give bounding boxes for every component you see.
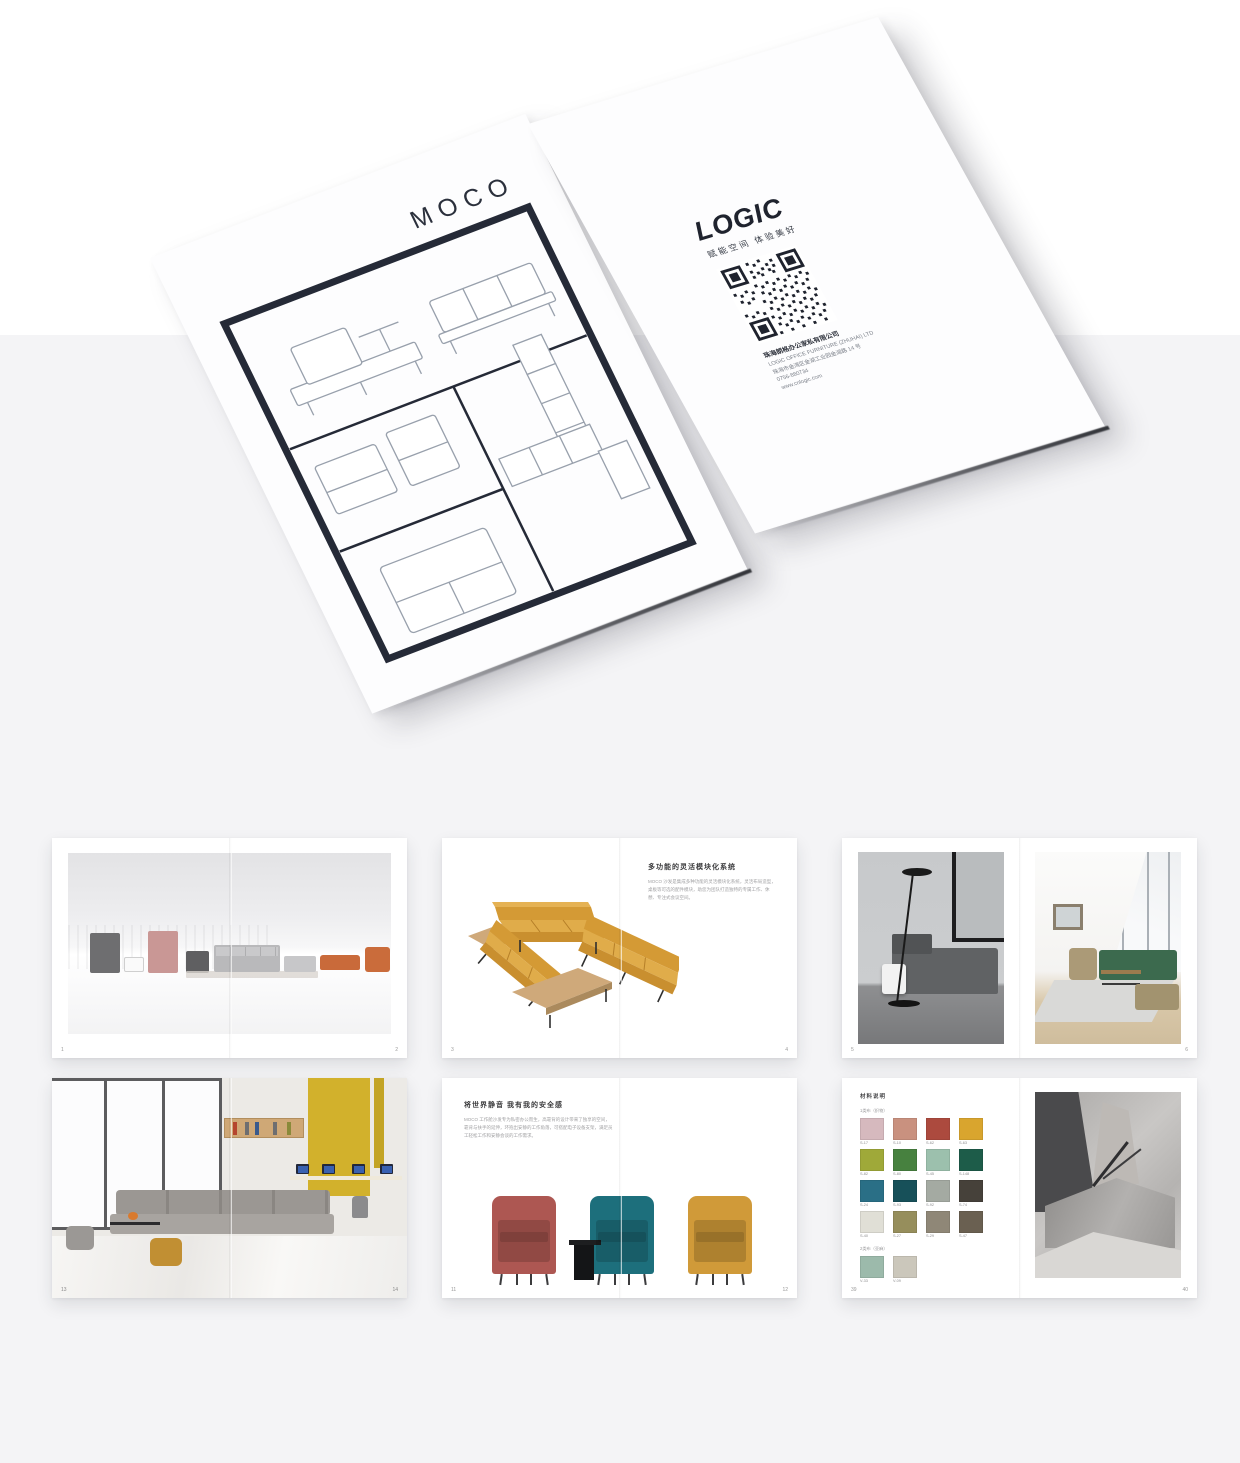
page-fold (619, 1078, 622, 1298)
fabric-swatch: S-45 (926, 1149, 952, 1176)
orange-daybed (320, 955, 360, 970)
fabric-swatch: S-29 (926, 1211, 952, 1238)
green-sofa-photo (1035, 852, 1181, 1044)
swatch-color-chip (959, 1118, 983, 1140)
fabric-swatch: S-40 (860, 1211, 886, 1238)
line-plan-view-right (454, 323, 649, 532)
pink-booth-chair (148, 931, 178, 973)
gray-booth-chair (90, 933, 120, 973)
fabric-swatch: S-17 (860, 1118, 886, 1145)
fabric-swatch: S-62 (926, 1118, 952, 1145)
craftsmanship-photo (1035, 1092, 1181, 1278)
page-number-right: 40 (1182, 1287, 1188, 1293)
monitor-icon (352, 1164, 365, 1174)
beige-armchair (1069, 948, 1097, 980)
wall-picture (1053, 904, 1083, 930)
heading: 将世界静音 我有我的安全感 (464, 1100, 614, 1110)
swatch-color-chip (926, 1118, 950, 1140)
line-sofa-top-left (273, 307, 429, 419)
fabric-swatch: S-93 (893, 1180, 919, 1207)
rose-highback-chair (492, 1196, 556, 1274)
teal-highback-chair (590, 1196, 654, 1274)
body-text: MOCO 沙发是集成多种功能的灵活模块化系统，灵活布局造型，桌板等可选的配件模块… (648, 878, 776, 902)
mustard-highback-chair (688, 1196, 752, 1274)
page-number-right: 12 (782, 1287, 788, 1293)
swatch-color-chip (893, 1211, 917, 1233)
dark-lounge-chair (186, 951, 209, 973)
page-number-right: 14 (392, 1287, 398, 1293)
swatch-color-chip (893, 1180, 917, 1202)
swatch-color-chip (860, 1118, 884, 1140)
gray-pouf (66, 1226, 94, 1250)
page-fold (1019, 838, 1022, 1058)
mustard-sofa-illustration (454, 876, 679, 1046)
page-fold (1019, 1078, 1022, 1298)
swatch-code: S-74 (959, 1203, 985, 1207)
green-sofa (1099, 950, 1177, 980)
swatch-code: S-10 (893, 1141, 919, 1145)
swatch-code: S-45 (926, 1172, 952, 1176)
monitor-icon (322, 1164, 335, 1174)
swatch-code: S-17 (860, 1141, 886, 1145)
swatch-code: S-24 (860, 1203, 886, 1207)
line-loveseats-mid-left (312, 414, 461, 514)
linen-swatch-grid: V-33 V-09 (860, 1256, 1010, 1283)
monitor-icon (380, 1164, 393, 1174)
swatch-code: S-148 (959, 1172, 985, 1176)
spread-modular-system: 多功能的灵活模块化系统 MOCO 沙发是集成多种功能的灵活模块化系统，灵活布局造… (442, 838, 797, 1058)
swatch-code: S-40 (860, 1234, 886, 1238)
workstation-desk (290, 1176, 402, 1180)
coffee-table (1101, 970, 1141, 974)
fabric-swatch: S-92 (926, 1180, 952, 1207)
page-number-left: 1 (61, 1047, 64, 1053)
swatch-color-chip (926, 1211, 950, 1233)
swatch-color-chip (893, 1149, 917, 1171)
section-heading-block: 将世界静音 我有我的安全感 MOCO 工作舱沙发专为私密办公而生，高靠背的设计带… (464, 1100, 614, 1140)
hand-shape (1087, 1102, 1139, 1188)
attached-black-table (574, 1240, 594, 1280)
fabric-swatch: S-24 (860, 1180, 886, 1207)
qr-code-icon (716, 245, 838, 345)
heading: 多功能的灵活模块化系统 (648, 862, 776, 872)
monitor-icon (296, 1164, 309, 1174)
orange-armchair (365, 947, 390, 972)
swatch-code: S-27 (893, 1234, 919, 1238)
gray-sofa-photo (858, 852, 1004, 1044)
fabric-swatch: S-80 (893, 1149, 919, 1176)
page-fold (229, 838, 232, 1058)
fabric-swatch: S-47 (959, 1211, 985, 1238)
page-number-left: 3 (451, 1047, 454, 1053)
side-table (124, 957, 144, 972)
spread-showroom: 1 2 (52, 838, 407, 1058)
swatch-code: V-33 (860, 1279, 886, 1283)
fabric-swatch: V-09 (893, 1256, 919, 1283)
swatch-code: S-92 (926, 1203, 952, 1207)
spread-interiors: 5 6 (842, 838, 1197, 1058)
gray-modular-sofa (116, 1190, 330, 1244)
swatch-color-chip (860, 1149, 884, 1171)
gray-sofa (892, 948, 998, 994)
fabric-group1-label: 1类布（织物） (860, 1108, 1010, 1114)
fabric-group2-label: 2类布（亚麻） (860, 1246, 1010, 1252)
fabric-swatch: S-82 (860, 1149, 886, 1176)
swatch-panel: 材料说明 1类布（织物） S-17 S-10 S-62 S-63 (860, 1092, 1010, 1283)
body-text: MOCO 工作舱沙发专为私密办公而生，高靠背的设计带来了独享的空间，靠背与扶手的… (464, 1116, 614, 1140)
fabric-swatch-grid: S-17 S-10 S-62 S-63 S-82 (860, 1118, 1010, 1238)
swatch-color-chip (860, 1180, 884, 1202)
page-number-right: 4 (785, 1047, 788, 1053)
section-heading-block: 多功能的灵活模块化系统 MOCO 沙发是集成多种功能的灵活模块化系统，灵活布局造… (648, 862, 776, 902)
beige-chaise (1135, 984, 1179, 1010)
swatch-color-chip (893, 1118, 917, 1140)
floor-lamp-base (888, 1000, 920, 1007)
fabric-swatch: S-63 (959, 1118, 985, 1145)
spread-office-lounge: 13 14 (52, 1078, 407, 1298)
swatch-color-chip (959, 1211, 983, 1233)
swatch-color-chip (959, 1180, 983, 1202)
fabric-swatch: S-148 (959, 1149, 985, 1176)
page-number-left: 11 (451, 1287, 456, 1293)
swatch-color-chip (860, 1256, 884, 1278)
swatch-code: S-82 (860, 1172, 886, 1176)
page-number-right: 2 (395, 1047, 398, 1053)
fabric-swatch: S-74 (959, 1180, 985, 1207)
swatch-code: S-80 (893, 1172, 919, 1176)
materials-title: 材料说明 (860, 1092, 1010, 1100)
swatch-color-chip (893, 1256, 917, 1278)
office-chair (352, 1196, 368, 1218)
gray-chaise (284, 956, 316, 972)
page-number-left: 39 (851, 1287, 857, 1293)
page-number-left: 5 (851, 1047, 854, 1053)
white-side-table (882, 964, 906, 994)
flower-vase (128, 1212, 138, 1220)
wall-shelf (224, 1118, 304, 1138)
rug (186, 971, 318, 978)
back-cover-block: LOGIC 赋能空间 体验美好 珠海朗格办公家私有限公司 LOGIC OFFIC… (688, 167, 956, 392)
black-coffee-table (110, 1222, 160, 1225)
spread-acoustic-chairs: 将世界静音 我有我的安全感 MOCO 工作舱沙发专为私密办公而生，高靠背的设计带… (442, 1078, 797, 1298)
swatch-code: S-29 (926, 1234, 952, 1238)
fabric-swatch: V-33 (860, 1256, 886, 1283)
swatch-code: S-63 (959, 1141, 985, 1145)
swatch-color-chip (959, 1149, 983, 1171)
swatch-code: S-62 (926, 1141, 952, 1145)
gray-modular-sofa (214, 945, 280, 972)
spread-materials: 材料说明 1类布（织物） S-17 S-10 S-62 S-63 (842, 1078, 1197, 1298)
swatch-code: V-09 (893, 1279, 919, 1283)
swatch-color-chip (926, 1180, 950, 1202)
floor-lamp-head (902, 868, 932, 876)
fabric-swatch: S-10 (893, 1118, 919, 1145)
page-number-left: 13 (61, 1287, 67, 1293)
swatch-code: S-47 (959, 1234, 985, 1238)
swatch-color-chip (926, 1149, 950, 1171)
mustard-pouf (150, 1238, 182, 1266)
swatch-color-chip (860, 1211, 884, 1233)
page-fold (229, 1078, 232, 1298)
page-number-right: 6 (1185, 1047, 1188, 1053)
swatch-code: S-93 (893, 1203, 919, 1207)
catalog-showcase: MOCO (0, 0, 1240, 1463)
fabric-swatch: S-27 (893, 1211, 919, 1238)
wall-art-frame (952, 852, 1004, 942)
page-fold (619, 838, 622, 1058)
